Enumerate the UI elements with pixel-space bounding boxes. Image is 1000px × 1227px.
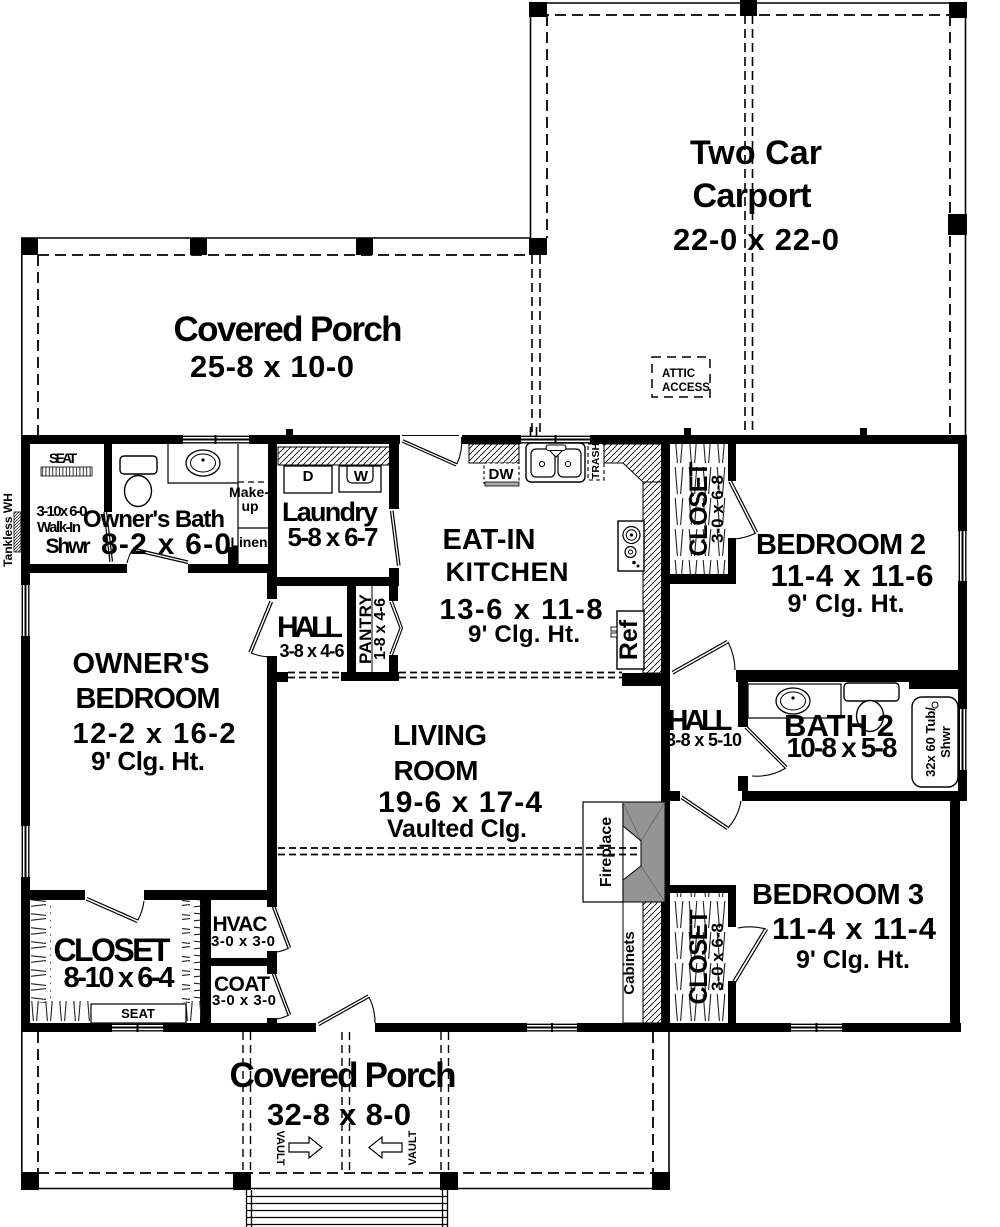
svg-text:LIVING: LIVING [393,720,487,752]
svg-text:3-0 x 6-8: 3-0 x 6-8 [708,923,727,991]
svg-text:Shwr: Shwr [46,535,91,558]
svg-text:Cabinets: Cabinets [621,931,638,994]
svg-text:9' Clg. Ht.: 9' Clg. Ht. [788,590,905,618]
svg-text:1-8 x 4-6: 1-8 x 4-6 [372,598,389,660]
svg-text:5-8 x 6-7: 5-8 x 6-7 [288,522,379,552]
svg-text:3-10x 6-0: 3-10x 6-0 [37,503,88,520]
svg-text:3-8 x 4-6: 3-8 x 4-6 [280,641,345,661]
svg-text:up: up [241,498,258,514]
svg-text:3-0 x 3-0: 3-0 x 3-0 [211,933,275,950]
svg-text:Two Car: Two Car [690,134,822,172]
svg-text:3-0 x 6-8: 3-0 x 6-8 [708,475,727,543]
svg-text:22-0 x 22-0: 22-0 x 22-0 [673,222,839,257]
svg-text:3-0 x 3-0: 3-0 x 3-0 [212,992,276,1009]
svg-text:9' Clg. Ht.: 9' Clg. Ht. [796,946,910,974]
svg-text:Shwr: Shwr [938,726,953,758]
svg-text:Linen: Linen [231,534,268,550]
svg-text:Tankless WH: Tankless WH [1,493,15,567]
svg-text:W: W [354,468,369,485]
svg-text:BEDROOM 3: BEDROOM 3 [752,879,924,911]
svg-text:Walk-In: Walk-In [37,519,81,536]
svg-text:9' Clg. Ht.: 9' Clg. Ht. [468,621,580,648]
svg-text:DW: DW [489,466,515,483]
svg-text:EAT-IN: EAT-IN [443,524,536,556]
svg-text:32x 60 Tub/: 32x 60 Tub/ [923,707,938,777]
svg-text:ROOM: ROOM [394,755,479,786]
svg-text:Vaulted Clg.: Vaulted Clg. [387,815,527,843]
svg-text:ATTIC: ATTIC [662,368,695,380]
svg-text:Ref: Ref [615,619,643,660]
svg-text:Covered Porch: Covered Porch [174,310,403,349]
svg-text:Covered Porch: Covered Porch [230,1056,457,1095]
svg-text:OWNER'S: OWNER'S [73,648,210,680]
svg-text:KITCHEN: KITCHEN [446,557,569,587]
svg-text:BEDROOM 2: BEDROOM 2 [756,529,926,561]
svg-text:Carport: Carport [693,177,812,215]
svg-text:25-8 x 10-0: 25-8 x 10-0 [190,349,354,384]
svg-text:11-4 x 11-6: 11-4 x 11-6 [771,558,934,593]
svg-text:32-8 x 8-0: 32-8 x 8-0 [267,1097,411,1132]
svg-text:D: D [303,468,314,485]
svg-text:HALL: HALL [277,611,343,644]
svg-text:SEAT: SEAT [49,450,77,466]
svg-text:11-4 x 11-4: 11-4 x 11-4 [772,911,937,946]
svg-text:3-8 x 5-10: 3-8 x 5-10 [666,730,742,750]
svg-text:8-10 x 6-4: 8-10 x 6-4 [64,962,175,994]
svg-text:10-8 x 5-8: 10-8 x 5-8 [787,732,898,763]
svg-text:9' Clg. Ht.: 9' Clg. Ht. [91,746,205,776]
svg-text:VAULT: VAULT [407,1130,419,1165]
svg-text:BEDROOM: BEDROOM [76,683,221,715]
svg-text:ACCESS: ACCESS [662,382,710,394]
svg-text:TRASH: TRASH [590,443,602,479]
svg-text:8-2 x 6-0: 8-2 x 6-0 [101,528,231,561]
svg-text:SEAT: SEAT [121,1006,155,1021]
svg-text:Fireplace: Fireplace [598,817,615,887]
svg-text:VAULT: VAULT [274,1130,286,1165]
